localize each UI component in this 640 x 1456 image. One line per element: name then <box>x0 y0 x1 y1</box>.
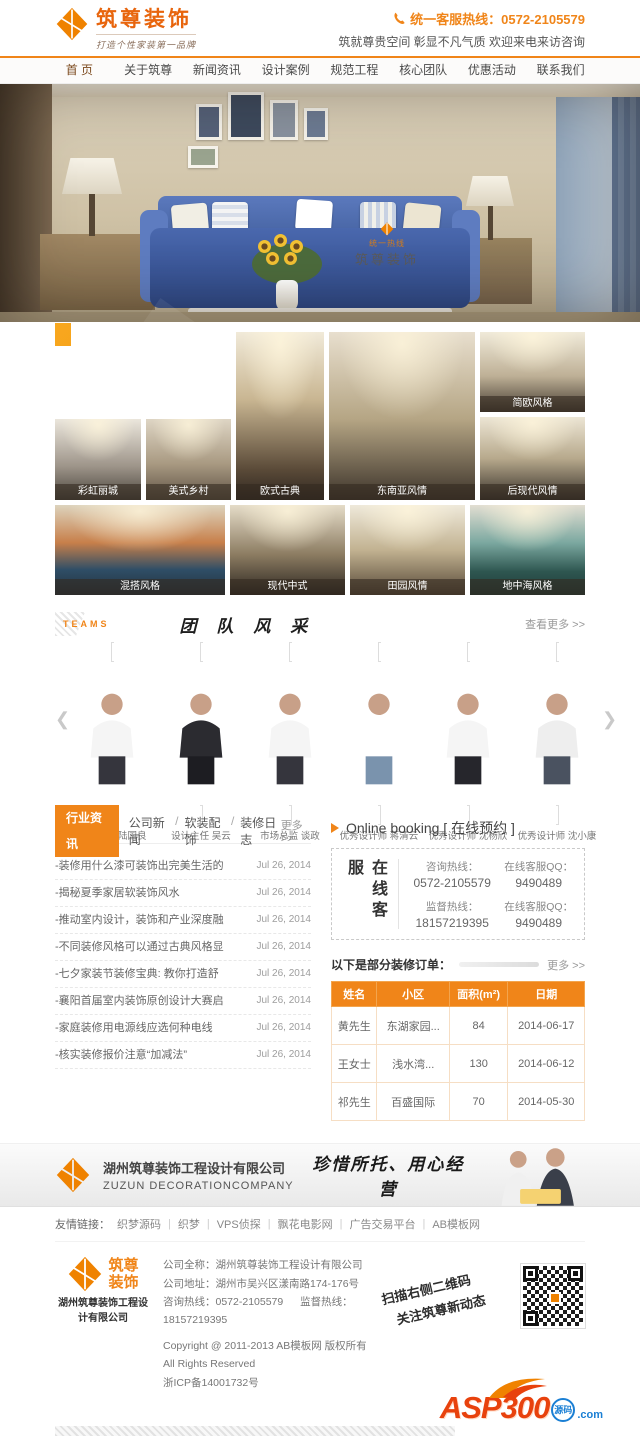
friend-link[interactable]: 飘花电影网 <box>278 1216 333 1232</box>
orders-rule <box>459 962 539 967</box>
news-title: -核实装修报价注意“加减法” <box>55 1042 187 1068</box>
cell-label: 在线客服QQ： <box>499 899 578 914</box>
footer-full-name: 公司全称：湖州筑尊装饰工程设计有限公司 <box>163 1256 379 1274</box>
news-item[interactable]: -襄阳首届室内装饰原创设计大赛启Jul 26, 2014 <box>55 988 311 1015</box>
case-caption: 欧式古典 <box>236 484 324 500</box>
person-photo-placeholder <box>517 659 597 808</box>
news-title: -襄阳首届室内装饰原创设计大赛启 <box>55 988 224 1014</box>
play-icon <box>331 823 339 833</box>
tab-company-news[interactable]: 公司新闻 <box>129 814 169 848</box>
booking-cell: 在线客服QQ： 9490489 <box>499 859 578 890</box>
news-list: -装修用什么漆可装饰出完美生活的Jul 26, 2014 -揭秘夏季家居软装饰风… <box>55 853 311 1069</box>
link-separator: | <box>268 1218 271 1230</box>
service-hotline: 统一客服热线：0572-2105579 <box>338 9 585 28</box>
link-separator: | <box>207 1218 210 1230</box>
logo-title: 筑尊装饰 <box>96 6 192 31</box>
tab-separator: / <box>175 814 178 848</box>
table-row: 王女士 浅水湾... 130 2014-06-12 <box>332 1045 585 1083</box>
team-member-card[interactable]: 优秀设计师 沈杨欣 <box>428 645 508 794</box>
qr-finder-pattern <box>523 1266 538 1281</box>
person-photo-placeholder <box>428 659 508 808</box>
cell-area: 130 <box>449 1045 508 1083</box>
header-right: 统一客服热线：0572-2105579 筑就尊贵空间 彰显不凡气质 欢迎来电来访… <box>338 9 585 50</box>
news-date: Jul 26, 2014 <box>257 853 312 879</box>
friend-link[interactable]: 织梦 <box>178 1216 200 1232</box>
qr-finder-pattern <box>568 1266 583 1281</box>
footer: 筑尊 装饰 湖州筑尊装饰工程设计有限公司 公司全称：湖州筑尊装饰工程设计有限公司… <box>55 1241 585 1456</box>
cell-name: 祁先生 <box>332 1083 377 1121</box>
news-item[interactable]: -核实装修报价注意“加减法”Jul 26, 2014 <box>55 1042 311 1069</box>
case-caption: 东南亚风情 <box>329 484 475 500</box>
banner-calligraphy-slogan: 珍惜所托、用心经营 <box>306 1150 471 1200</box>
news-item[interactable]: -家庭装修用电源线应选何种电线Jul 26, 2014 <box>55 1015 311 1042</box>
case-caption: 地中海风格 <box>470 579 585 595</box>
team-carousel: ❮ 设计总监 陆国良 设计主任 吴云 市场总监 谈政 优秀设计师 蒋清云 <box>55 645 585 794</box>
team-more-link[interactable]: 查看更多 >> <box>525 616 585 632</box>
team-header: TEAMS 团 队 风 采 查看更多 >> <box>55 611 585 637</box>
news-item[interactable]: -七夕家装节装修宝典: 教你打造舒Jul 26, 2014 <box>55 961 311 988</box>
nav-item-contact[interactable]: 联系我们 <box>526 58 595 83</box>
member-photo <box>250 642 330 825</box>
carousel-next-icon[interactable]: ❯ <box>602 709 614 730</box>
cell-name: 王女士 <box>332 1045 377 1083</box>
friend-link[interactable]: VPS侦探 <box>217 1216 261 1232</box>
nav-item-about[interactable]: 关于筑尊 <box>114 58 183 83</box>
news-title: -揭秘夏季家居软装饰风水 <box>55 880 180 906</box>
cases-section: CLASSIC CASES 经典案例 彩虹丽城 美式乡村 欧式古典 东南亚风情 … <box>55 332 585 595</box>
booking-box: 在线客服 咨询热线： 0572-2105579 在线客服QQ： 9490489 … <box>331 848 585 940</box>
person-photo-placeholder <box>72 659 152 808</box>
booking-column: Online booking [ 在线预约 ] 在线客服 咨询热线： 0572-… <box>331 818 585 1121</box>
booking-title: Online booking [ 在线预约 ] <box>331 818 585 838</box>
news-item[interactable]: -推动室内设计，装饰和产业深度融Jul 26, 2014 <box>55 907 311 934</box>
case-tile[interactable]: 地中海风格 <box>470 505 585 595</box>
person-icon <box>72 659 152 808</box>
member-photo <box>517 642 597 825</box>
footer-brand-line1: 筑尊 <box>108 1257 138 1274</box>
asp300-logo[interactable]: ASP300 源码 .com <box>440 1390 603 1426</box>
cell-value: 18157219395 <box>405 916 499 930</box>
case-caption: 现代中式 <box>230 579 345 595</box>
cell-date: 2014-06-12 <box>508 1045 585 1083</box>
member-photo <box>161 642 241 825</box>
footer-icp: 浙ICP备14001732号 <box>163 1374 379 1392</box>
brand-diamond-icon <box>67 1256 103 1292</box>
person-photo-placeholder <box>250 659 330 808</box>
brand-diamond-icon <box>55 1157 91 1193</box>
friend-links: 友情链接： 织梦源码 | 织梦 | VPS侦探 | 飘花电影网 | 广告交易平台… <box>55 1216 585 1232</box>
team-label-en: TEAMS <box>63 619 110 629</box>
qr-code <box>521 1264 585 1328</box>
news-item[interactable]: -揭秘夏季家居软装饰风水Jul 26, 2014 <box>55 880 311 907</box>
news-item[interactable]: -不同装修风格可以通过古典风格显Jul 26, 2014 <box>55 934 311 961</box>
orders-more-link[interactable]: 更多 >> <box>547 957 585 973</box>
link-separator: | <box>422 1218 425 1230</box>
news-title: -七夕家装节装修宝典: 教你打造舒 <box>55 961 219 987</box>
hotline-text: 统一客服热线：0572-2105579 <box>410 9 585 28</box>
brand-diamond-icon <box>55 7 89 41</box>
logo-tagline: 打造个性家装第一品牌 <box>96 34 196 51</box>
cell-value: 9490489 <box>499 876 578 890</box>
news-date: Jul 26, 2014 <box>257 1042 312 1068</box>
cell-community: 浅水湾... <box>377 1045 449 1083</box>
case-tile[interactable]: 后现代风情 <box>480 417 585 500</box>
cell-date: 2014-06-17 <box>508 1007 585 1045</box>
booking-title-text: Online booking [ 在线预约 ] <box>346 818 515 838</box>
case-tile[interactable]: 田园风情 <box>350 505 465 595</box>
banner-company-en: ZUZUN DECORATIONCOMPANY <box>103 1180 294 1192</box>
header-slogan: 筑就尊贵空间 彰显不凡气质 欢迎来电来访咨询 <box>338 33 585 50</box>
site-header: 筑尊装饰 打造个性家装第一品牌 统一客服热线：0572-2105579 筑就尊贵… <box>0 0 640 56</box>
col-name: 姓名 <box>332 982 377 1007</box>
news-date: Jul 26, 2014 <box>257 1015 312 1041</box>
footer-company-name: 湖州筑尊装饰工程设计有限公司 <box>55 1297 151 1326</box>
tab-separator: / <box>231 814 234 848</box>
tab-soft-deco[interactable]: 软装配饰 <box>185 814 225 848</box>
company-banner-inner: 湖州筑尊装饰工程设计有限公司 ZUZUN DECORATIONCOMPANY 珍… <box>55 1144 585 1206</box>
hatch-divider <box>55 1426 455 1436</box>
link-separator: | <box>168 1218 171 1230</box>
footer-main: 筑尊 装饰 湖州筑尊装饰工程设计有限公司 公司全称：湖州筑尊装饰工程设计有限公司… <box>55 1256 585 1392</box>
case-tile[interactable]: 彩虹丽城 <box>55 419 141 500</box>
cell-area: 84 <box>449 1007 508 1045</box>
case-caption: 简欧风格 <box>480 396 585 412</box>
friend-link[interactable]: AB模板网 <box>432 1216 480 1232</box>
page: 筑尊装饰 打造个性家装第一品牌 统一客服热线：0572-2105579 筑就尊贵… <box>0 0 640 1456</box>
news-date: Jul 26, 2014 <box>257 988 312 1014</box>
case-tile[interactable]: 现代中式 <box>230 505 345 595</box>
news-date: Jul 26, 2014 <box>257 961 312 987</box>
business-people-image <box>483 1148 585 1206</box>
tab-industry-news[interactable]: 行业资讯 <box>55 805 119 857</box>
orders-header-row: 姓名 小区 面积(m²) 日期 <box>332 982 585 1007</box>
tab-deco-log[interactable]: 装修日志 <box>240 814 280 848</box>
news-date: Jul 26, 2014 <box>257 880 312 906</box>
nav-item-news[interactable]: 新闻资讯 <box>183 58 252 83</box>
table-row: 黄先生 东湖家园... 84 2014-06-17 <box>332 1007 585 1045</box>
person-icon <box>339 659 419 808</box>
booking-cell: 咨询热线： 0572-2105579 <box>405 859 499 890</box>
cell-label: 在线客服QQ： <box>499 859 578 874</box>
news-date: Jul 26, 2014 <box>257 907 312 933</box>
news-booking-section: 行业资讯 公司新闻 / 软装配饰 / 装修日志 更多>> -装修用什么漆可装饰出… <box>55 818 585 1121</box>
news-title: -推动室内设计，装饰和产业深度融 <box>55 907 224 933</box>
news-item[interactable]: -装修用什么漆可装饰出完美生活的Jul 26, 2014 <box>55 853 311 880</box>
logo[interactable]: 筑尊装饰 打造个性家装第一品牌 <box>55 7 196 50</box>
footer-logo-top: 筑尊 装饰 <box>55 1256 151 1292</box>
news-title: -家庭装修用电源线应选何种电线 <box>55 1015 213 1041</box>
footer-hotlines: 咨询热线：0572-2105579 监督热线：18157219395 <box>163 1293 379 1330</box>
nav-item-promos[interactable]: 优惠活动 <box>458 58 527 83</box>
news-column: 行业资讯 公司新闻 / 软装配饰 / 装修日志 更多>> -装修用什么漆可装饰出… <box>55 818 311 1121</box>
case-tile[interactable]: 美式乡村 <box>146 419 231 500</box>
nav-item-projects[interactable]: 规范工程 <box>320 58 389 83</box>
booking-cell: 在线客服QQ： 9490489 <box>499 899 578 930</box>
news-date: Jul 26, 2014 <box>257 934 312 960</box>
nav-item-home[interactable]: 首 页 <box>45 58 114 83</box>
link-separator: | <box>340 1218 343 1230</box>
team-member-card[interactable]: 市场总监 谈政 <box>250 645 330 794</box>
cell-area: 70 <box>449 1083 508 1121</box>
person-icon <box>428 659 508 808</box>
banner-company: 湖州筑尊装饰工程设计有限公司 ZUZUN DECORATIONCOMPANY <box>103 1158 294 1192</box>
person-icon <box>250 659 330 808</box>
nav-item-team[interactable]: 核心团队 <box>389 58 458 83</box>
flame-icon <box>485 1374 549 1400</box>
person-icon <box>517 659 597 808</box>
case-tile[interactable]: 欧式古典 <box>236 332 324 500</box>
person-icon <box>161 659 241 808</box>
qr-finder-pattern <box>523 1311 538 1326</box>
friend-link[interactable]: 广告交易平台 <box>349 1216 415 1232</box>
person-photo-placeholder <box>339 659 419 808</box>
footer-address: 公司地址：湖州市吴兴区漾南路174-176号 <box>163 1275 379 1293</box>
team-member-card[interactable]: 设计总监 陆国良 <box>72 645 152 794</box>
col-community: 小区 <box>377 982 449 1007</box>
team-members: 设计总监 陆国良 设计主任 吴云 市场总监 谈政 优秀设计师 蒋清云 优秀设计师… <box>72 645 597 794</box>
news-more-link[interactable]: 更多>> <box>281 817 311 845</box>
case-tile[interactable]: 混搭风格 <box>55 505 225 595</box>
case-caption: 混搭风格 <box>55 579 225 595</box>
cell-community: 百盛国际 <box>377 1083 449 1121</box>
cell-label: 咨询热线： <box>405 859 499 874</box>
person-photo-placeholder <box>161 659 241 808</box>
nav-item-cases[interactable]: 设计案例 <box>251 58 320 83</box>
logo-text: 筑尊装饰 打造个性家装第一品牌 <box>96 7 196 50</box>
carousel-prev-icon[interactable]: ❮ <box>55 709 67 730</box>
case-caption: 田园风情 <box>350 579 465 595</box>
cell-value: 9490489 <box>499 916 578 930</box>
qr-center-logo <box>549 1292 561 1304</box>
news-title: -不同装修风格可以通过古典风格显 <box>55 934 224 960</box>
main-nav: 首 页 关于筑尊 新闻资讯 设计案例 规范工程 核心团队 优惠活动 联系我们 <box>0 56 640 84</box>
asp-row: ASP300 源码 .com <box>55 1406 585 1456</box>
cell-label: 监督热线： <box>405 899 499 914</box>
team-section: TEAMS 团 队 风 采 查看更多 >> ❮ 设计总监 陆国良 设计主任 吴云… <box>55 611 585 794</box>
phone-icon <box>393 12 406 25</box>
member-photo <box>339 642 419 825</box>
col-date: 日期 <box>508 982 585 1007</box>
team-member-card[interactable]: 优秀设计师 沈小康 <box>517 645 597 794</box>
asp300-domain: .com <box>577 1409 603 1421</box>
news-tabs: 公司新闻 / 软装配饰 / 装修日志 <box>129 814 281 848</box>
footer-info: 公司全称：湖州筑尊装饰工程设计有限公司 公司地址：湖州市吴兴区漾南路174-17… <box>163 1256 379 1392</box>
case-caption: 美式乡村 <box>146 484 231 500</box>
footer-copyright: Copyright @ 2011-2013 AB模板网 版权所有 All Rig… <box>163 1337 379 1374</box>
hero-slider[interactable]: 统一热线 筑尊装饰 <box>0 84 640 322</box>
footer-logo: 筑尊 装饰 湖州筑尊装饰工程设计有限公司 <box>55 1256 151 1392</box>
cell-community: 东湖家园... <box>377 1007 449 1045</box>
footer-brand-name: 筑尊 装饰 <box>108 1257 138 1292</box>
online-service-vertical-label: 在线客服 <box>338 859 399 929</box>
team-member-card[interactable]: 优秀设计师 蒋清云 <box>339 645 419 794</box>
news-title: -装修用什么漆可装饰出完美生活的 <box>55 853 224 879</box>
case-caption: 后现代风情 <box>480 484 585 500</box>
orders-label: 以下是部分装修订单： <box>331 956 451 973</box>
booking-contacts: 咨询热线： 0572-2105579 在线客服QQ： 9490489 监督热线：… <box>405 859 578 929</box>
case-caption: 彩虹丽城 <box>55 484 141 500</box>
footer-brand-line2: 装饰 <box>108 1274 138 1291</box>
member-photo <box>428 642 508 825</box>
col-area: 面积(m²) <box>449 982 508 1007</box>
team-member-card[interactable]: 设计主任 吴云 <box>161 645 241 794</box>
member-photo <box>72 642 152 825</box>
table-row: 祁先生 百盛国际 70 2014-05-30 <box>332 1083 585 1121</box>
booking-cell: 监督热线： 18157219395 <box>405 899 499 930</box>
cell-value: 0572-2105579 <box>405 876 499 890</box>
footer-hotline-1: 咨询热线：0572-2105579 <box>163 1296 283 1308</box>
team-title: 团 队 风 采 <box>180 612 315 637</box>
company-banner: 湖州筑尊装饰工程设计有限公司 ZUZUN DECORATIONCOMPANY 珍… <box>0 1143 640 1207</box>
friend-link[interactable]: 织梦源码 <box>117 1216 161 1232</box>
case-tile[interactable]: 东南亚风情 <box>329 332 475 500</box>
asp300-suffix: 源码 <box>551 1398 575 1422</box>
case-tile[interactable]: 简欧风格 <box>480 332 585 412</box>
cell-name: 黄先生 <box>332 1007 377 1045</box>
orders-table: 姓名 小区 面积(m²) 日期 黄先生 东湖家园... 84 2014-06-1… <box>331 981 585 1121</box>
banner-company-cn: 湖州筑尊装饰工程设计有限公司 <box>103 1158 294 1177</box>
friend-links-label: 友情链接： <box>55 1216 110 1232</box>
orders-row: 以下是部分装修订单： 更多 >> <box>331 956 585 973</box>
news-tab-bar: 行业资讯 公司新闻 / 软装配饰 / 装修日志 更多>> <box>55 818 311 844</box>
cell-date: 2014-05-30 <box>508 1083 585 1121</box>
